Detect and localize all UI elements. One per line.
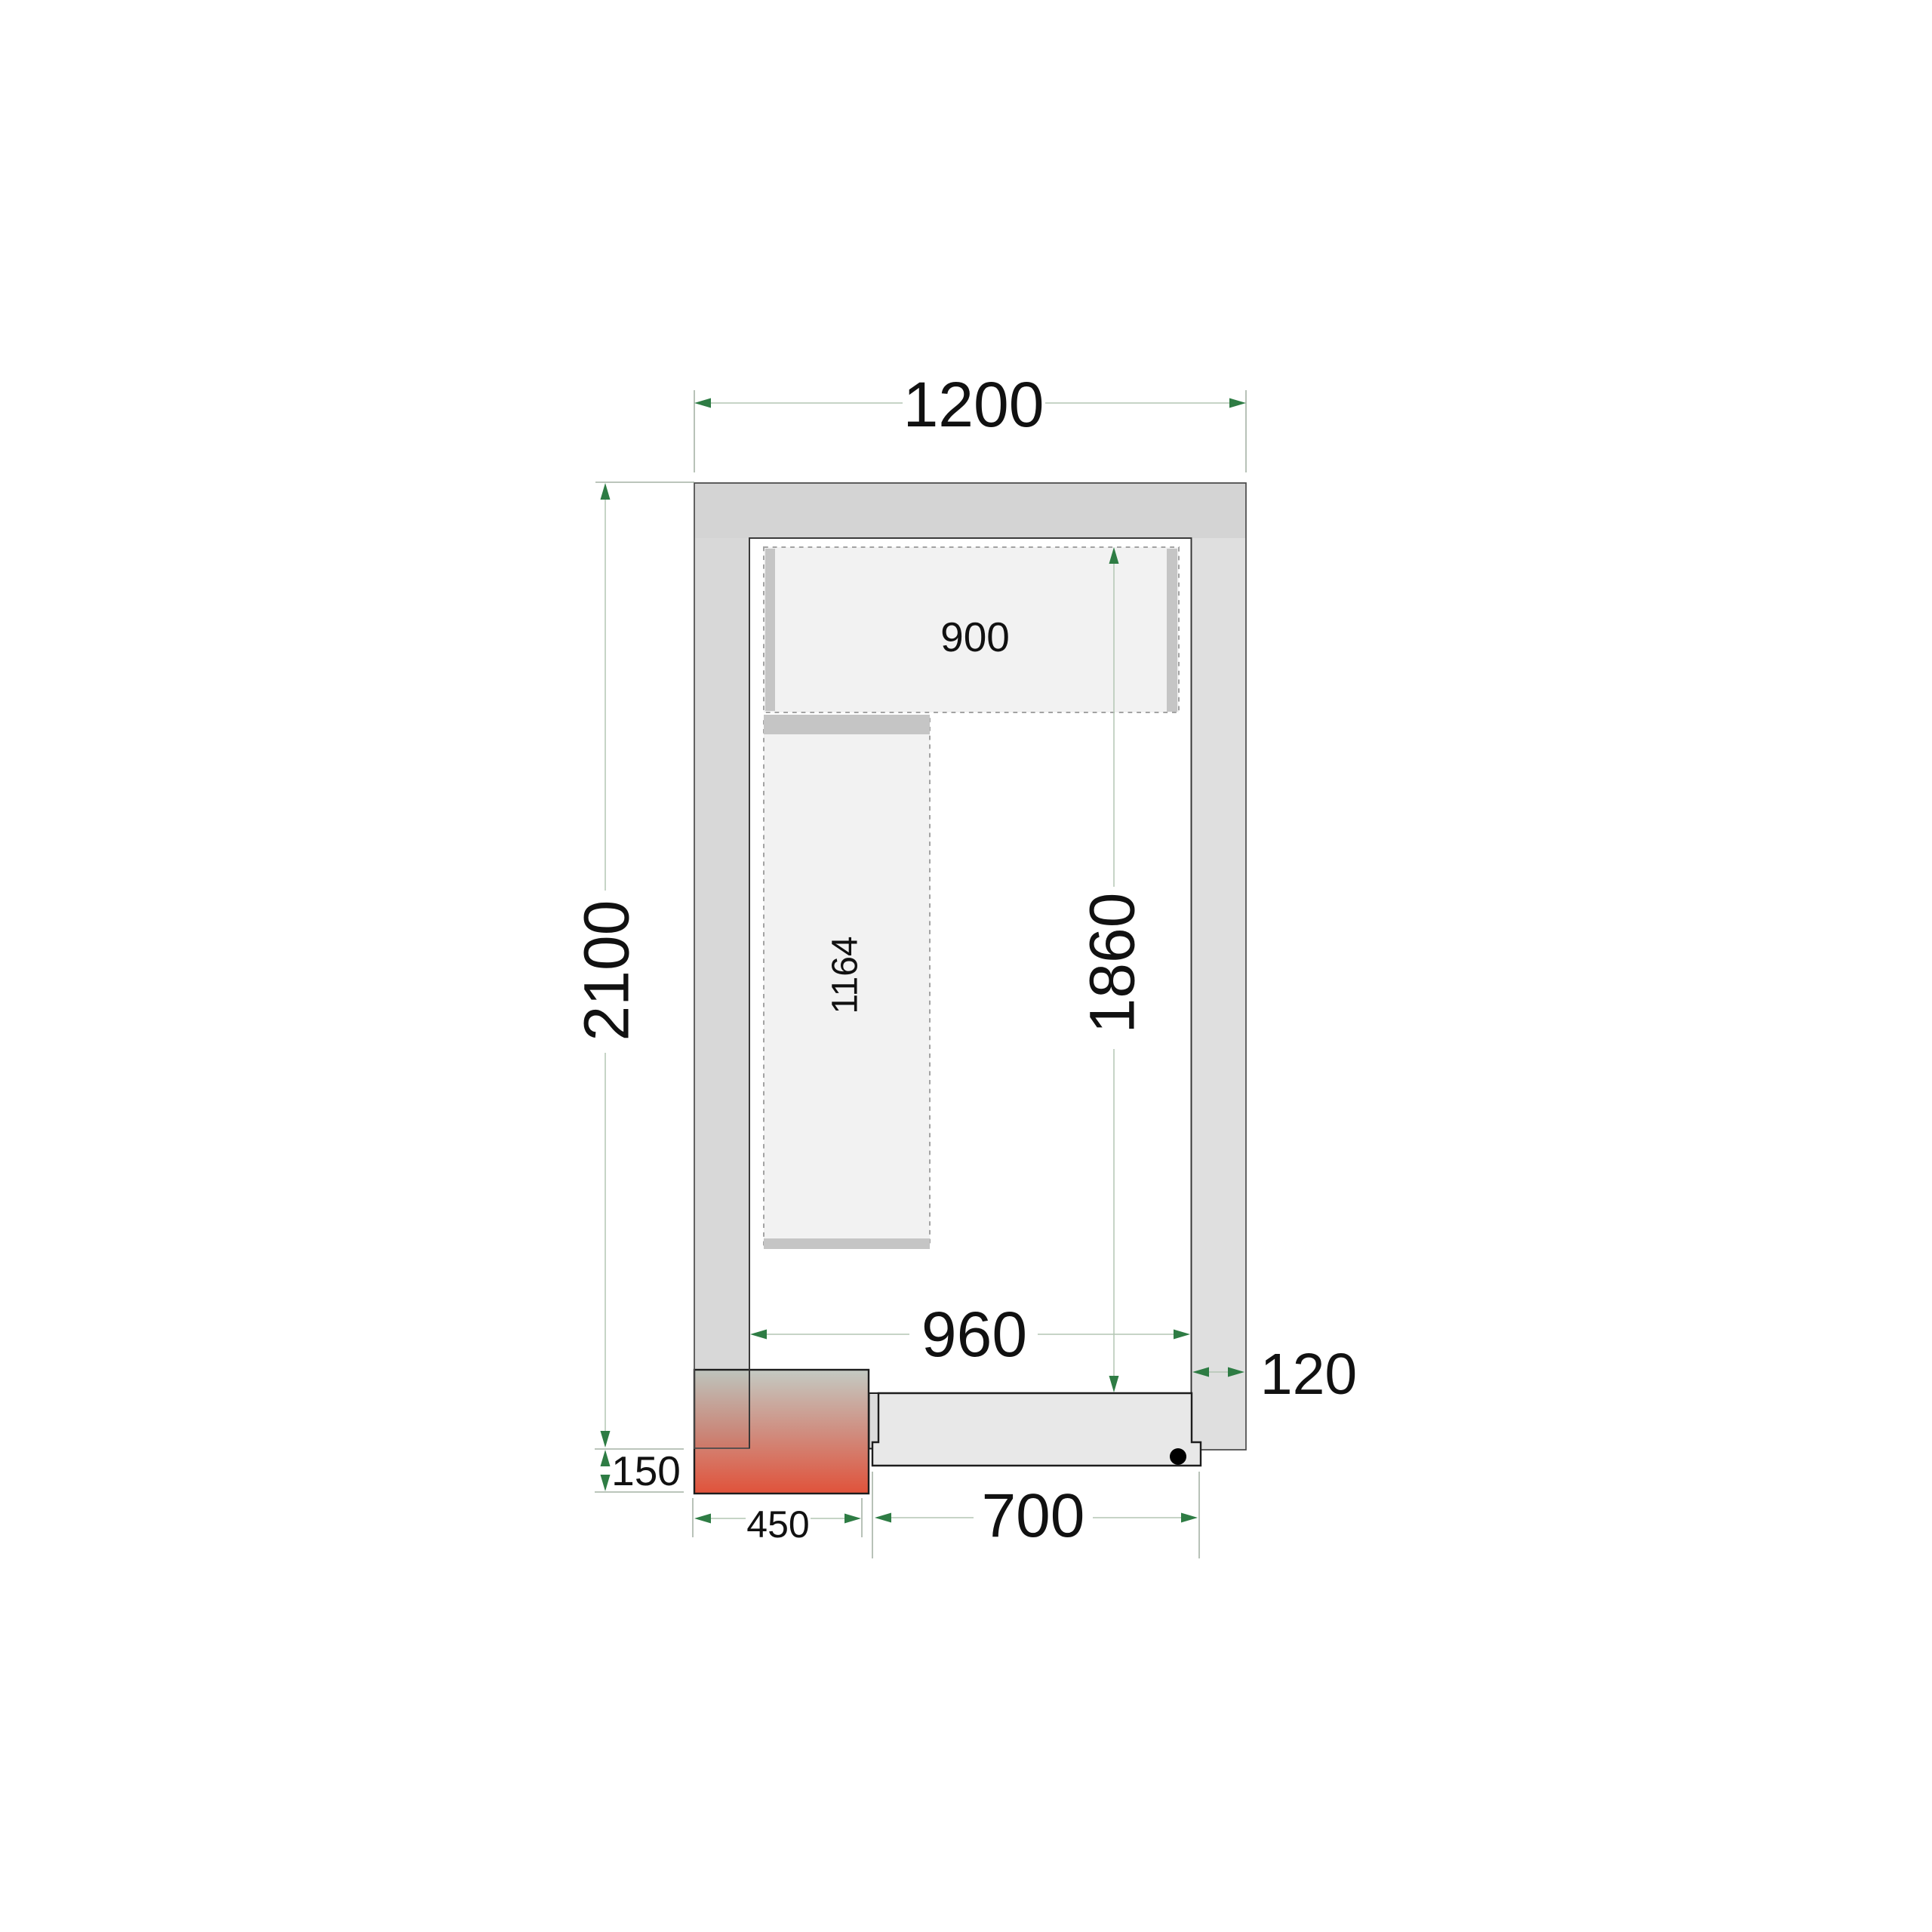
svg-text:120: 120: [1260, 1342, 1357, 1407]
svg-text:2100: 2100: [571, 900, 642, 1041]
svg-text:1164: 1164: [826, 936, 866, 1014]
svg-text:450: 450: [746, 1503, 809, 1546]
svg-text:900: 900: [940, 614, 1010, 660]
svg-text:960: 960: [921, 1299, 1027, 1370]
svg-text:150: 150: [611, 1447, 681, 1494]
svg-text:700: 700: [982, 1481, 1085, 1550]
svg-text:1860: 1860: [1077, 893, 1148, 1034]
svg-text:1200: 1200: [903, 369, 1044, 440]
